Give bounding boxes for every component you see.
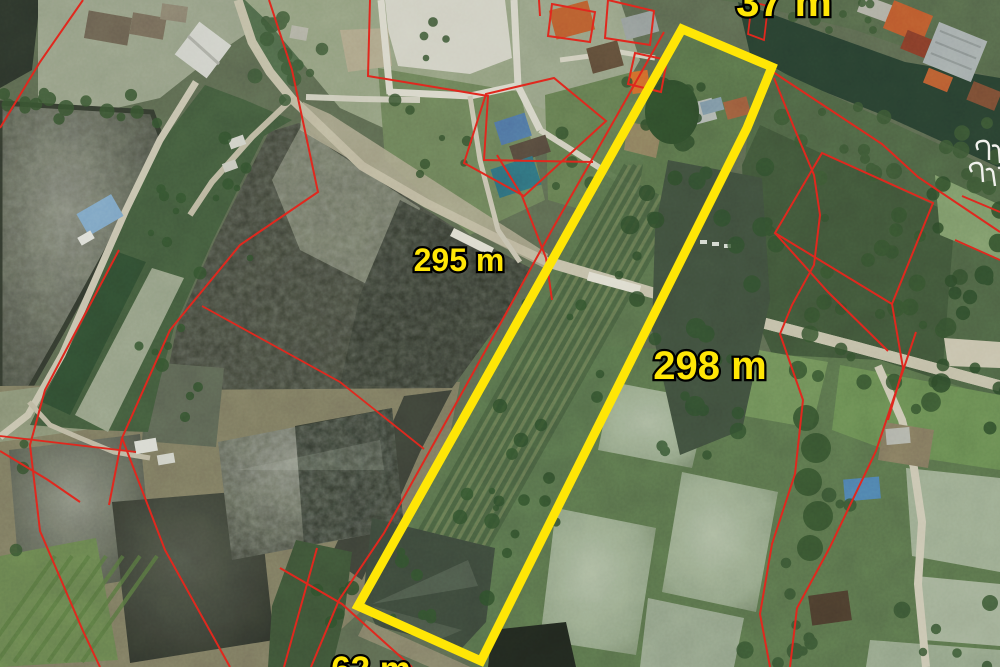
svg-text:62 m: 62 m	[331, 650, 411, 667]
svg-text:298 m: 298 m	[653, 344, 766, 388]
svg-text:37 m: 37 m	[736, 0, 832, 25]
svg-text:295 m: 295 m	[414, 242, 505, 278]
